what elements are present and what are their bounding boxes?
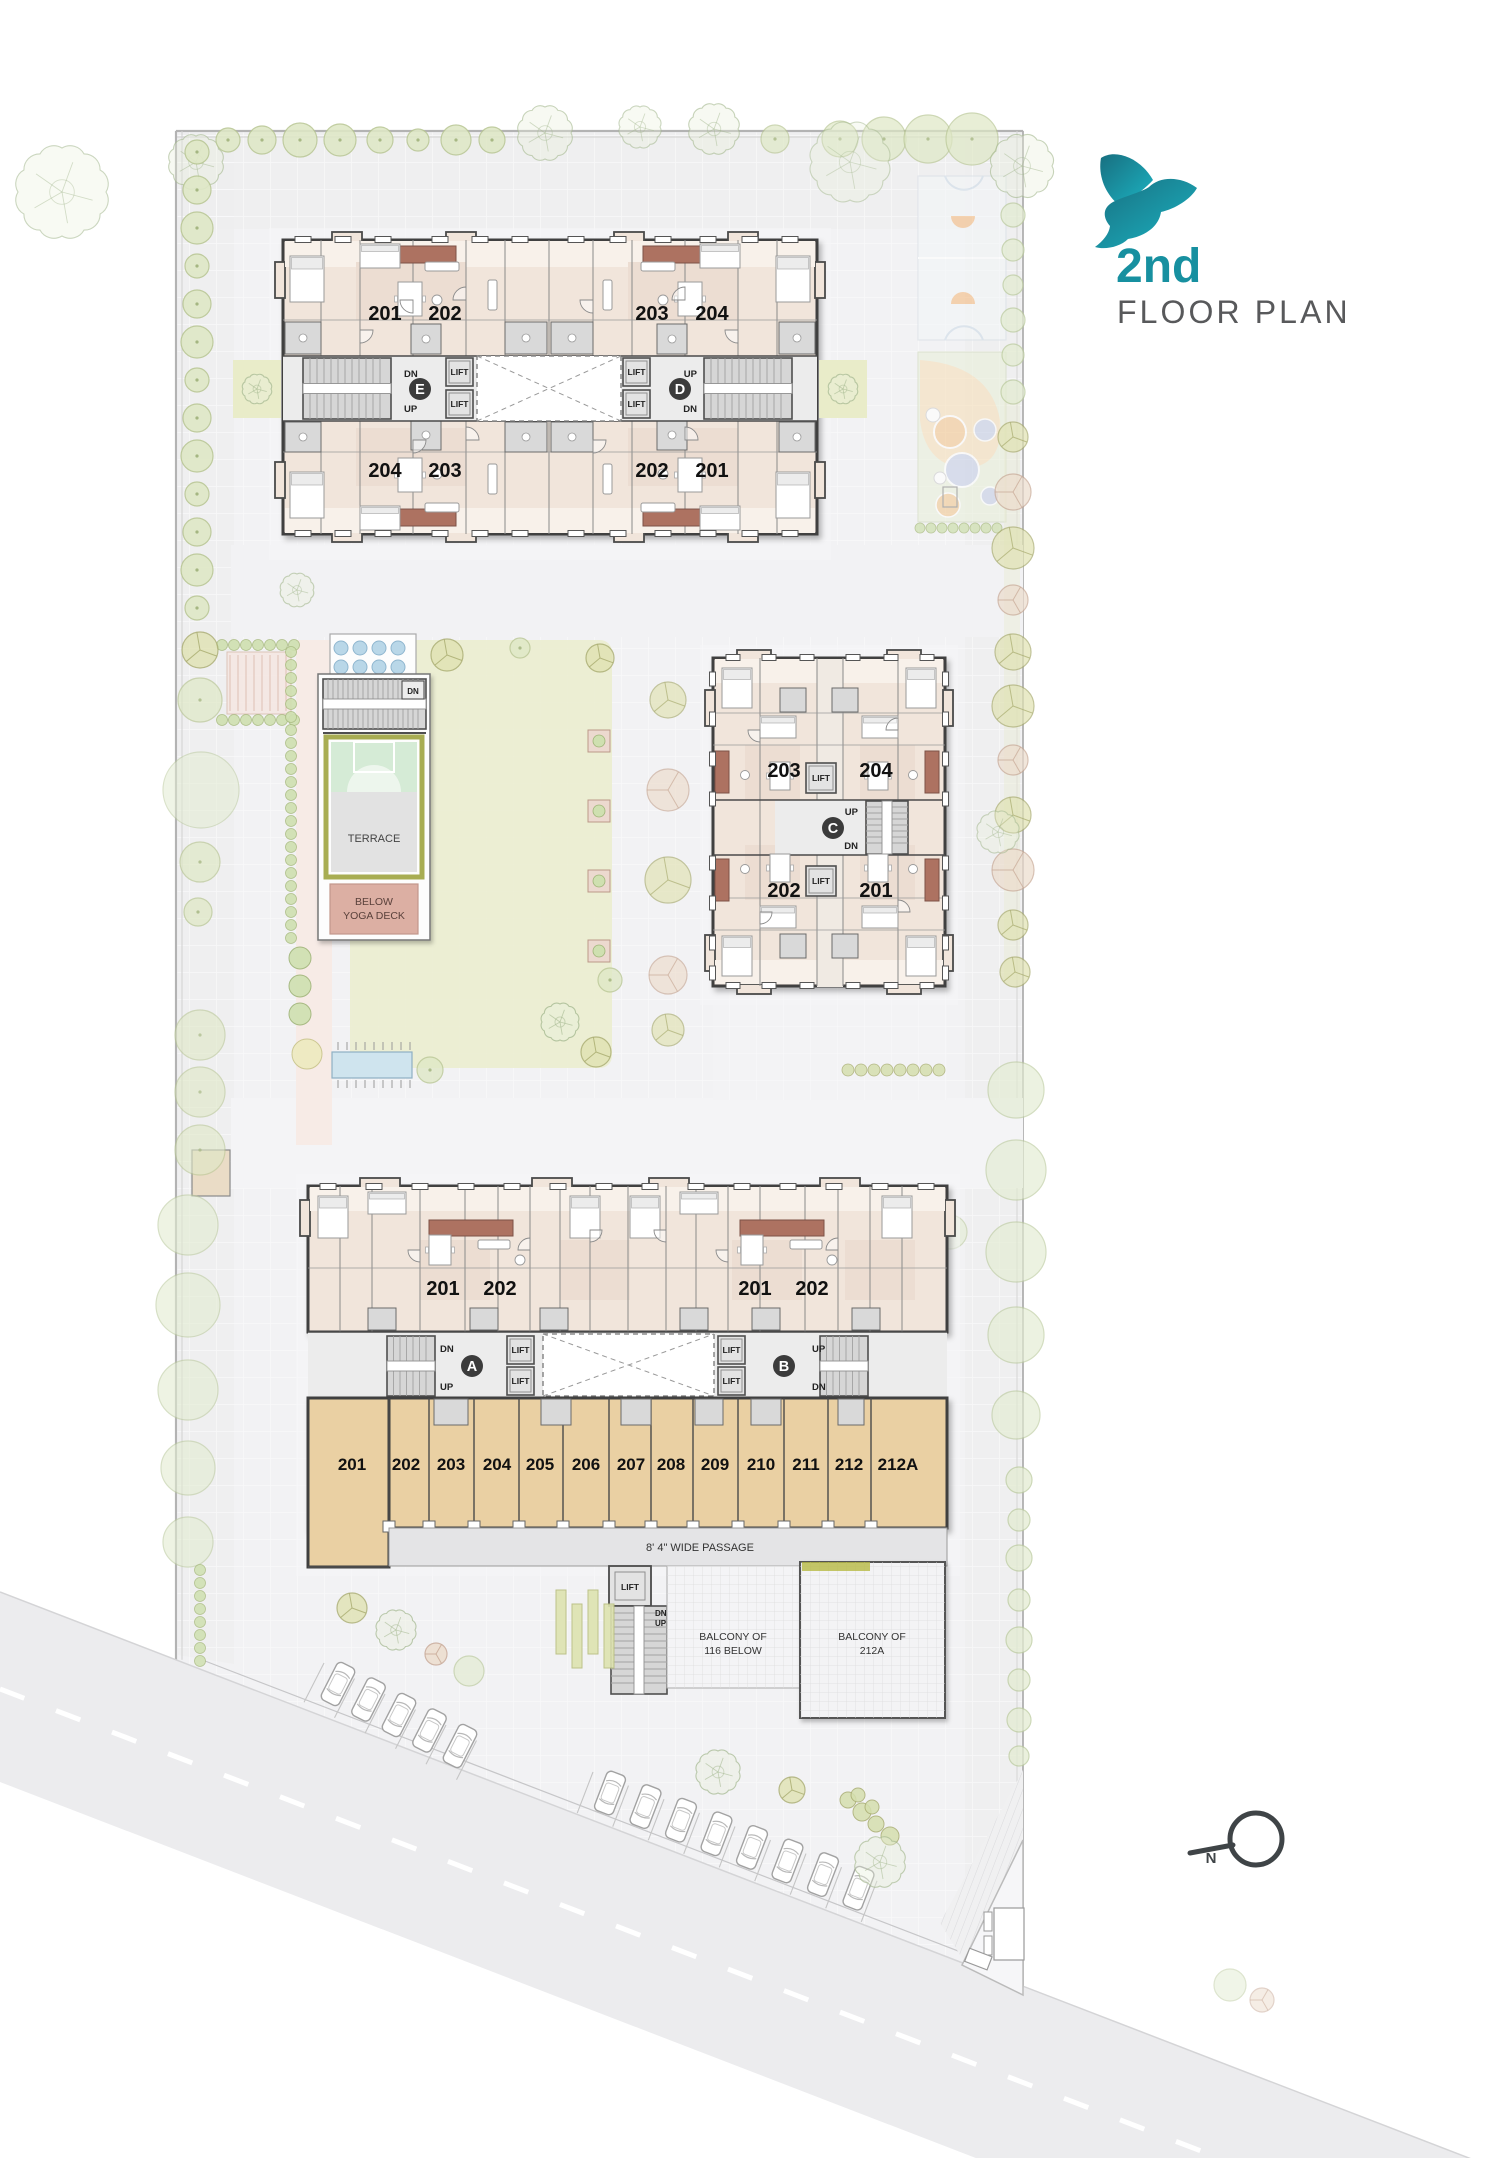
svg-text:UP: UP bbox=[655, 1619, 667, 1628]
svg-text:D: D bbox=[675, 382, 685, 398]
svg-text:8' 4" WIDE PASSAGE: 8' 4" WIDE PASSAGE bbox=[646, 1542, 754, 1554]
svg-text:208: 208 bbox=[657, 1455, 685, 1474]
svg-text:UP: UP bbox=[440, 1382, 454, 1393]
svg-text:204: 204 bbox=[483, 1455, 512, 1474]
svg-text:B: B bbox=[779, 1359, 789, 1375]
svg-text:202: 202 bbox=[428, 303, 461, 325]
svg-text:203: 203 bbox=[437, 1455, 465, 1474]
svg-text:TERRACE: TERRACE bbox=[348, 833, 401, 845]
svg-text:116 BELOW: 116 BELOW bbox=[704, 1645, 762, 1657]
svg-text:210: 210 bbox=[747, 1455, 775, 1474]
svg-text:201: 201 bbox=[738, 1278, 771, 1300]
svg-text:LIFT: LIFT bbox=[723, 1376, 742, 1386]
svg-text:203: 203 bbox=[428, 460, 461, 482]
svg-text:202: 202 bbox=[635, 460, 668, 482]
svg-text:202: 202 bbox=[795, 1278, 828, 1300]
svg-text:2nd: 2nd bbox=[1116, 240, 1201, 293]
svg-text:DN: DN bbox=[440, 1344, 454, 1355]
svg-text:LIFT: LIFT bbox=[723, 1345, 742, 1355]
svg-text:UP: UP bbox=[404, 404, 418, 415]
svg-text:FLOOR PLAN: FLOOR PLAN bbox=[1117, 294, 1351, 330]
svg-text:202: 202 bbox=[767, 880, 800, 902]
svg-text:BELOW: BELOW bbox=[355, 896, 393, 908]
svg-text:DN: DN bbox=[812, 1382, 826, 1393]
svg-text:203: 203 bbox=[635, 303, 668, 325]
svg-text:DN: DN bbox=[844, 841, 858, 852]
svg-text:LIFT: LIFT bbox=[451, 399, 470, 409]
svg-text:204: 204 bbox=[859, 760, 893, 782]
svg-text:201: 201 bbox=[338, 1455, 366, 1474]
svg-text:201: 201 bbox=[695, 460, 728, 482]
svg-text:A: A bbox=[467, 1359, 478, 1375]
svg-text:C: C bbox=[828, 821, 839, 837]
svg-text:DN: DN bbox=[404, 369, 418, 380]
svg-text:DN: DN bbox=[683, 404, 697, 415]
svg-text:LIFT: LIFT bbox=[812, 773, 831, 783]
svg-text:206: 206 bbox=[572, 1455, 600, 1474]
svg-text:201: 201 bbox=[426, 1278, 459, 1300]
svg-text:N: N bbox=[1206, 1850, 1217, 1867]
svg-text:UP: UP bbox=[812, 1344, 826, 1355]
svg-text:LIFT: LIFT bbox=[628, 367, 647, 377]
svg-text:212A: 212A bbox=[878, 1455, 919, 1474]
svg-text:DN: DN bbox=[655, 1609, 667, 1618]
svg-text:202: 202 bbox=[392, 1455, 420, 1474]
svg-text:LIFT: LIFT bbox=[512, 1376, 531, 1386]
svg-text:YOGA DECK: YOGA DECK bbox=[343, 910, 405, 922]
svg-text:207: 207 bbox=[617, 1455, 645, 1474]
svg-text:209: 209 bbox=[701, 1455, 729, 1474]
svg-text:UP: UP bbox=[845, 807, 859, 818]
svg-text:E: E bbox=[415, 382, 425, 398]
svg-text:212: 212 bbox=[835, 1455, 863, 1474]
svg-text:LIFT: LIFT bbox=[451, 367, 470, 377]
svg-text:LIFT: LIFT bbox=[621, 1582, 640, 1592]
svg-text:202: 202 bbox=[483, 1278, 516, 1300]
svg-text:LIFT: LIFT bbox=[812, 876, 831, 886]
svg-text:BALCONY OF: BALCONY OF bbox=[699, 1631, 767, 1643]
svg-text:211: 211 bbox=[792, 1455, 819, 1474]
svg-text:204: 204 bbox=[368, 460, 402, 482]
svg-text:205: 205 bbox=[526, 1455, 554, 1474]
svg-text:212A: 212A bbox=[860, 1645, 885, 1657]
svg-text:LIFT: LIFT bbox=[628, 399, 647, 409]
svg-text:LIFT: LIFT bbox=[512, 1345, 531, 1355]
svg-text:201: 201 bbox=[859, 880, 892, 902]
svg-text:204: 204 bbox=[695, 303, 729, 325]
svg-text:DN: DN bbox=[407, 687, 419, 696]
svg-text:201: 201 bbox=[368, 303, 401, 325]
svg-text:BALCONY OF: BALCONY OF bbox=[838, 1631, 906, 1643]
svg-text:UP: UP bbox=[684, 369, 698, 380]
svg-text:203: 203 bbox=[767, 760, 800, 782]
